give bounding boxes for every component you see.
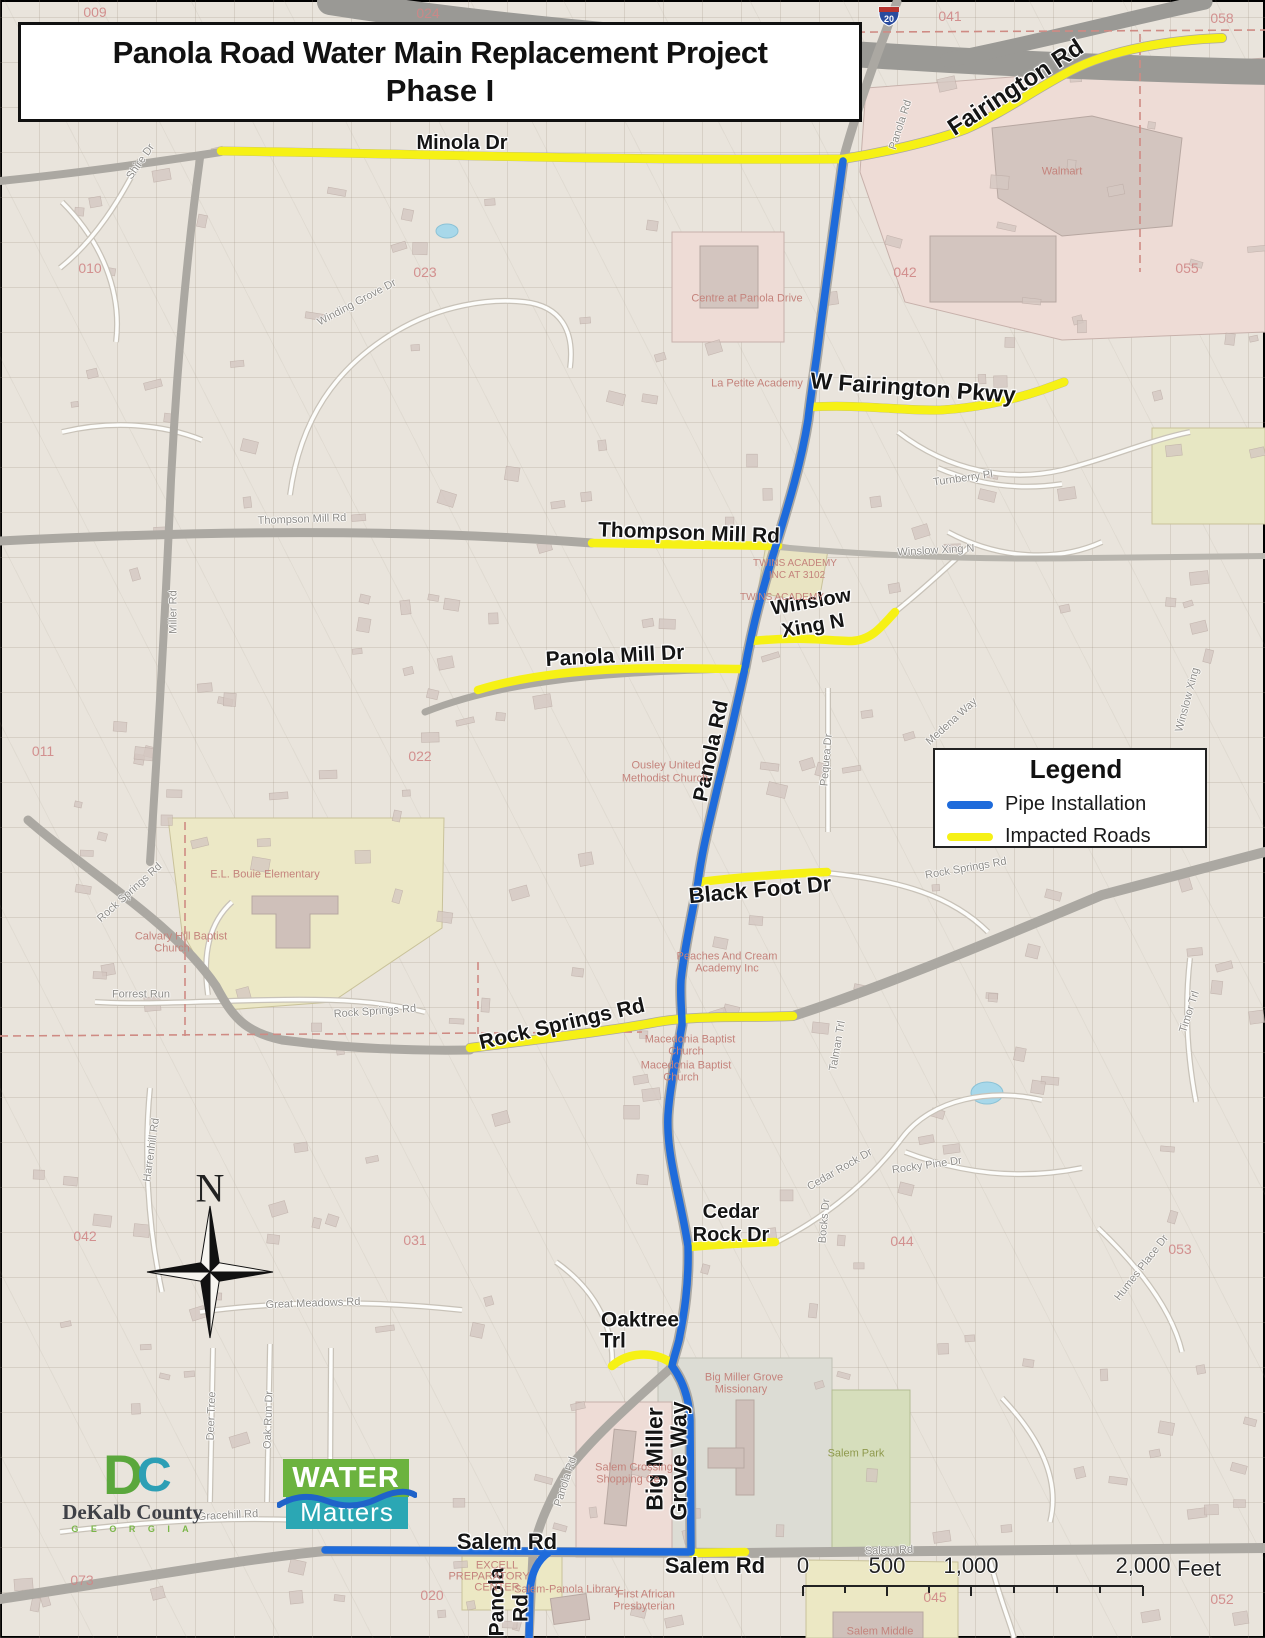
scale-tick-2000: 2,000 — [1115, 1553, 1170, 1579]
interstate-20-shield: 20 — [879, 7, 899, 26]
scale-tick-0: 0 — [797, 1553, 809, 1579]
legend-item-pipe-installation: Pipe Installation — [947, 793, 1205, 816]
map-title-line2: Phase I — [21, 73, 859, 109]
scale-unit: Feet — [1177, 1556, 1221, 1582]
centre-at-panola-building — [700, 246, 758, 308]
dekalb-logo-c: C — [137, 1448, 172, 1503]
pipe-installation-salem-rd — [325, 1550, 690, 1552]
north-arrow — [147, 1206, 273, 1338]
scale-tick-500: 500 — [869, 1553, 906, 1579]
dekalb-logo-name: DeKalb County — [55, 1500, 210, 1525]
impacted-road-winslow-xing-n — [752, 612, 895, 641]
impacted-roads-swatch — [947, 833, 993, 841]
water-matters-logo: WATER Matters — [283, 1459, 413, 1531]
dekalb-logo-georgia: G E O R G I A — [55, 1524, 210, 1534]
library-building — [550, 1594, 589, 1625]
impacted-road-thompson-mill-rd — [592, 543, 778, 546]
legend-item-label: Impacted Roads — [1005, 825, 1151, 848]
pipe-installation-panola-rd — [668, 161, 843, 1552]
impacted-road-w-fairington-pkwy — [810, 382, 1064, 410]
map-title-line1: Panola Road Water Main Replacement Proje… — [21, 35, 859, 71]
title-box: Panola Road Water Main Replacement Proje… — [18, 22, 862, 122]
commercial-building — [930, 236, 1056, 302]
scale-tick-1000: 1,000 — [943, 1553, 998, 1579]
impacted-road-black-foot-dr — [700, 872, 827, 882]
north-arrow-label: N — [196, 1165, 225, 1212]
interstate-shield-number: 20 — [884, 14, 894, 24]
water-wave-icon — [277, 1483, 417, 1523]
impacted-road-salem-rd — [692, 1552, 745, 1553]
pipe-installation-swatch — [947, 801, 993, 809]
legend-item-impacted-roads: Impacted Roads — [947, 825, 1205, 848]
impacted-road-cedar-rock-dr — [690, 1242, 775, 1247]
dekalb-county-logo: D C DeKalb County G E O R G I A — [55, 1442, 210, 1537]
legend-item-label: Pipe Installation — [1005, 793, 1146, 816]
impacted-road-minola-dr — [221, 151, 843, 159]
legend-title: Legend — [947, 754, 1205, 785]
legend: Legend Pipe Installation Impacted Roads — [933, 748, 1207, 848]
church-annex-building — [708, 1448, 744, 1468]
salem-middle-building — [833, 1612, 923, 1638]
map-viewport: 20 Minola DrFairington RdW Fairington Pk… — [0, 0, 1265, 1638]
